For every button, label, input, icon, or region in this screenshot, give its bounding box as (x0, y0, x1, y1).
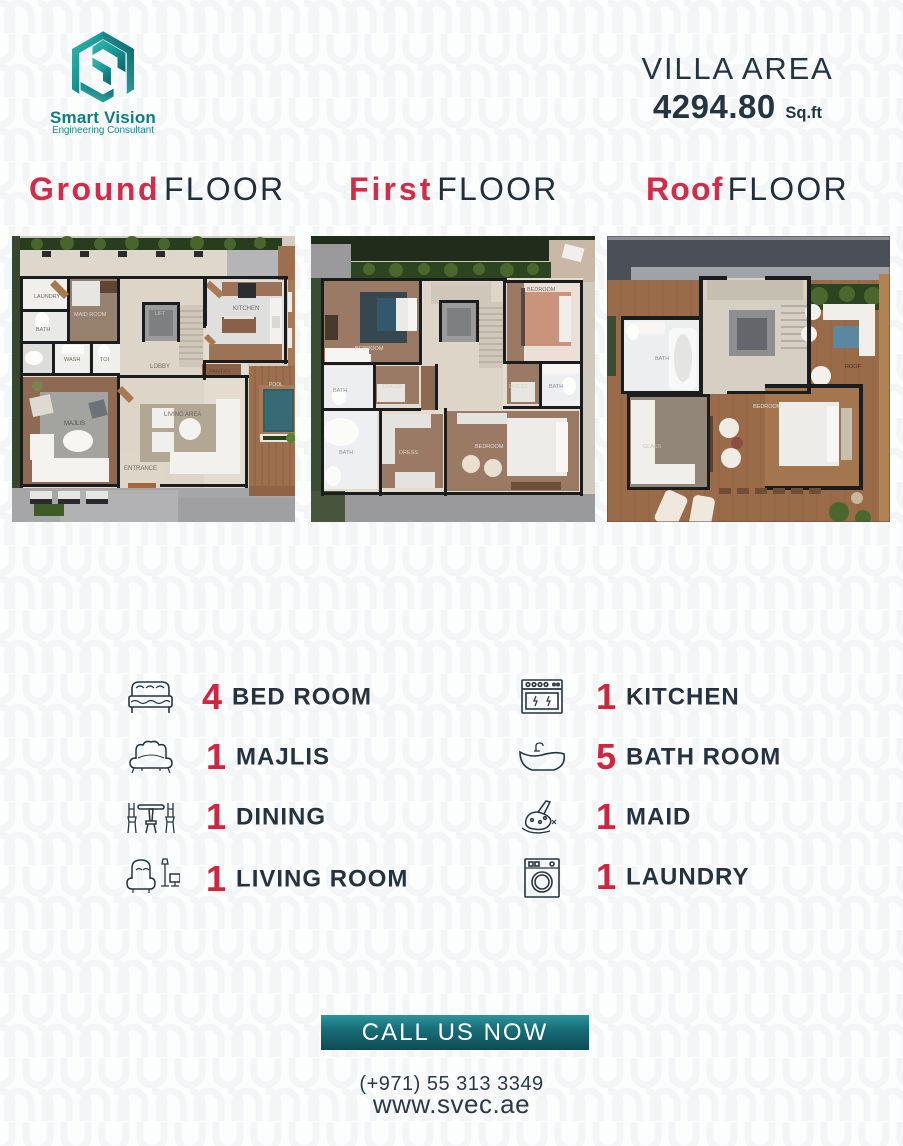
svg-text:ROOF: ROOF (845, 364, 862, 370)
svg-text:BATH: BATH (36, 327, 50, 333)
svg-text:BATH: BATH (549, 384, 563, 390)
svg-text:KITCHEN: KITCHEN (233, 306, 259, 312)
svg-text:DRESS: DRESS (383, 384, 402, 390)
svg-text:BATH: BATH (655, 356, 669, 362)
svg-text:LIVING AREA: LIVING AREA (164, 412, 201, 418)
svg-text:PANTRY: PANTRY (209, 369, 231, 375)
svg-text:BEDROOM: BEDROOM (355, 346, 384, 352)
svg-text:BEDROOM: BEDROOM (475, 444, 504, 450)
svg-text:LAUNDRY: LAUNDRY (34, 294, 61, 300)
svg-text:POOL: POOL (269, 382, 283, 388)
svg-text:BEDROOM: BEDROOM (527, 287, 556, 293)
svg-text:BATH: BATH (339, 450, 353, 456)
svg-text:WASH: WASH (64, 357, 80, 363)
svg-text:MAID ROOM: MAID ROOM (74, 312, 107, 318)
svg-text:ENTRANCE: ENTRANCE (124, 466, 157, 472)
svg-text:DRESS: DRESS (399, 450, 418, 456)
svg-text:LIFT: LIFT (155, 311, 165, 317)
svg-text:GLASS: GLASS (643, 444, 662, 450)
svg-text:MAJLIS: MAJLIS (64, 421, 85, 427)
svg-text:TOI: TOI (100, 357, 110, 363)
svg-text:LOBBY: LOBBY (150, 364, 170, 370)
svg-text:DRESS: DRESS (509, 384, 528, 390)
svg-text:BEDROOM: BEDROOM (753, 404, 782, 410)
svg-text:BATH: BATH (333, 388, 347, 394)
